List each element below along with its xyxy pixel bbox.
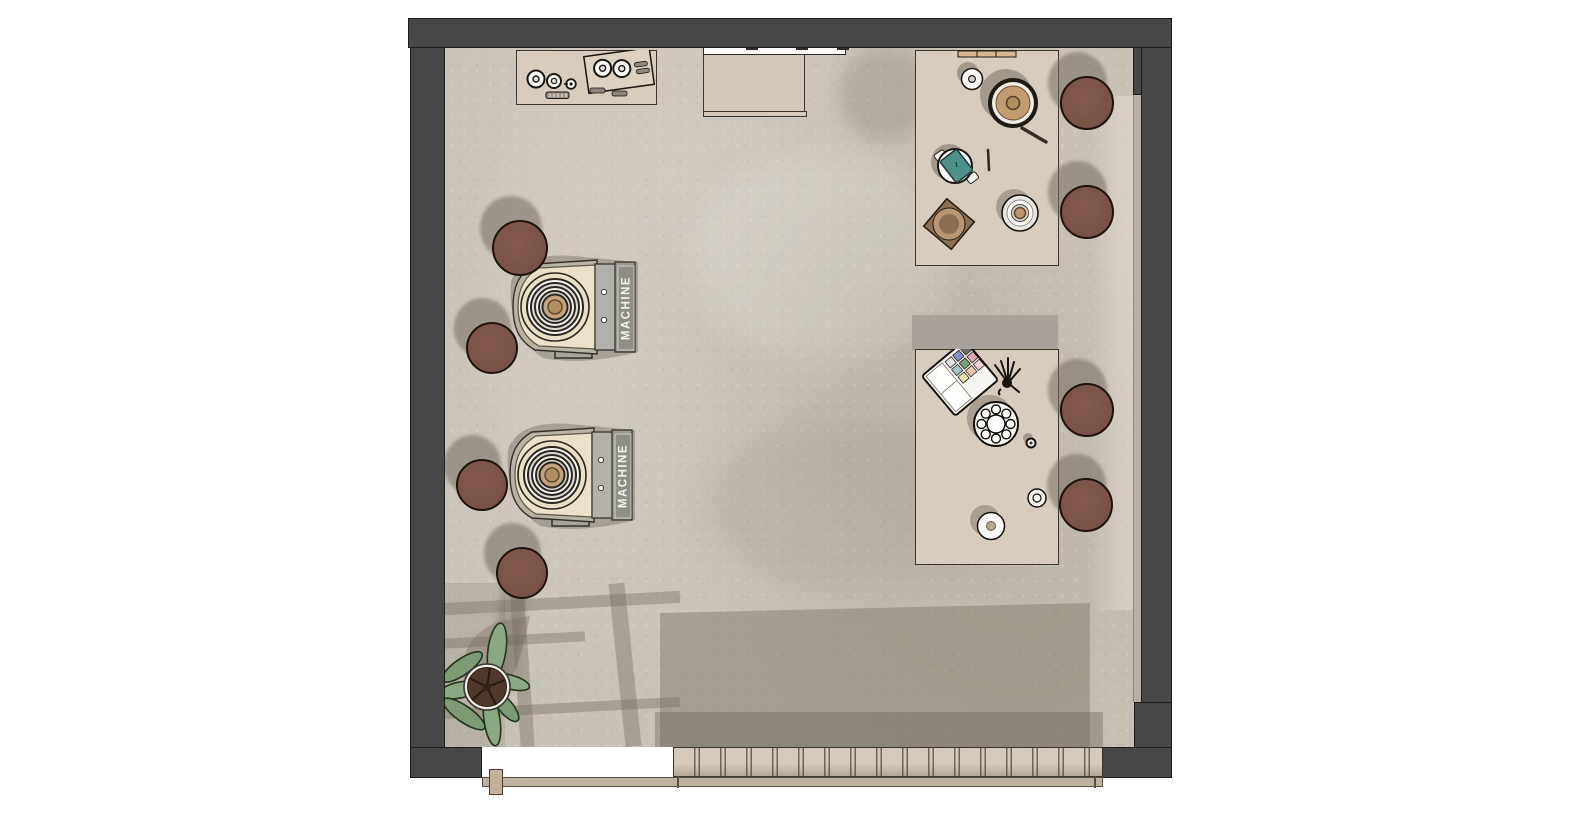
- screw-icon: [601, 289, 606, 294]
- stool-seat: [492, 220, 548, 276]
- wall-right-bottom-step: [1134, 702, 1172, 748]
- knock-box-icon: [924, 199, 975, 250]
- stool-seat: [1060, 76, 1114, 130]
- coffee-grinder-icon: [980, 69, 1038, 128]
- small-cup-icon: [1023, 433, 1036, 448]
- tilted-appliance: [584, 50, 655, 93]
- brush-set-icon: [995, 358, 1020, 395]
- stool-4: [496, 547, 548, 599]
- control-knob-icon: [528, 71, 576, 89]
- coffee-bar-items: [915, 50, 1059, 266]
- small-dish-icon: [1028, 489, 1046, 507]
- stool-5: [1060, 76, 1114, 130]
- right-wall-ledge: [1133, 94, 1141, 702]
- machine-side-panel: [595, 264, 617, 350]
- window-sill: [482, 777, 1103, 787]
- floor-plan-stage: MACHINE MACHINE: [0, 0, 1586, 814]
- wall-bottom-right-block: [1100, 747, 1172, 778]
- jar-icon: [970, 505, 1005, 540]
- wall-shelf-strip: [703, 47, 846, 55]
- cup-with-saucer-icon: [996, 189, 1038, 231]
- espresso-machine-2: MACHINE: [500, 420, 650, 540]
- stool-seat: [1059, 478, 1113, 532]
- wall-left: [410, 47, 445, 748]
- stirrer-icon: [988, 150, 989, 170]
- stool-7: [1060, 383, 1114, 437]
- screw-icon: [601, 317, 606, 322]
- stool-seat: [456, 459, 508, 511]
- stool-8: [1059, 478, 1113, 532]
- door-pivot-peg: [489, 769, 503, 795]
- wood-shelf-icon: [958, 51, 1016, 57]
- machine-rings: [518, 441, 586, 509]
- stool-seat: [466, 322, 518, 374]
- screw-icon: [598, 457, 603, 462]
- stool-6: [1060, 185, 1114, 239]
- window-bench-slats: [673, 747, 1103, 777]
- coffee-scale-icon: [931, 144, 979, 184]
- bar-knife-icon: [1022, 128, 1046, 142]
- sill-joint: [677, 776, 679, 788]
- stool-seat: [496, 547, 548, 599]
- machine-label: MACHINE: [618, 444, 630, 508]
- stool-3: [456, 459, 508, 511]
- table-shadow-band: [912, 315, 1058, 350]
- stool-seat: [1060, 185, 1114, 239]
- machine-side-panel: [592, 432, 614, 518]
- floor-texture-light: [690, 150, 950, 360]
- plant-pot: [464, 664, 510, 710]
- stool-seat: [1060, 383, 1114, 437]
- cabinet-lip: [703, 111, 807, 117]
- espresso-cup-icon: [957, 62, 983, 90]
- appliance-console-items: [516, 50, 657, 105]
- rotary-palette-icon: [967, 395, 1018, 446]
- beauty-table-items: [915, 349, 1059, 565]
- stool-1: [492, 220, 548, 276]
- machine-rings: [521, 273, 589, 341]
- stool-2: [466, 322, 518, 374]
- vent-grille-icon: [546, 92, 569, 99]
- sill-joint: [1094, 776, 1096, 788]
- machine-label: MACHINE: [621, 276, 633, 340]
- wall-bottom-left-block: [410, 747, 482, 778]
- screw-icon: [598, 485, 603, 490]
- wall-cabinet: [703, 52, 805, 113]
- bench-cast-shadow: [655, 712, 1103, 747]
- wall-right: [1141, 47, 1172, 703]
- window-shadow-band: [608, 583, 641, 747]
- wall-top: [408, 18, 1172, 48]
